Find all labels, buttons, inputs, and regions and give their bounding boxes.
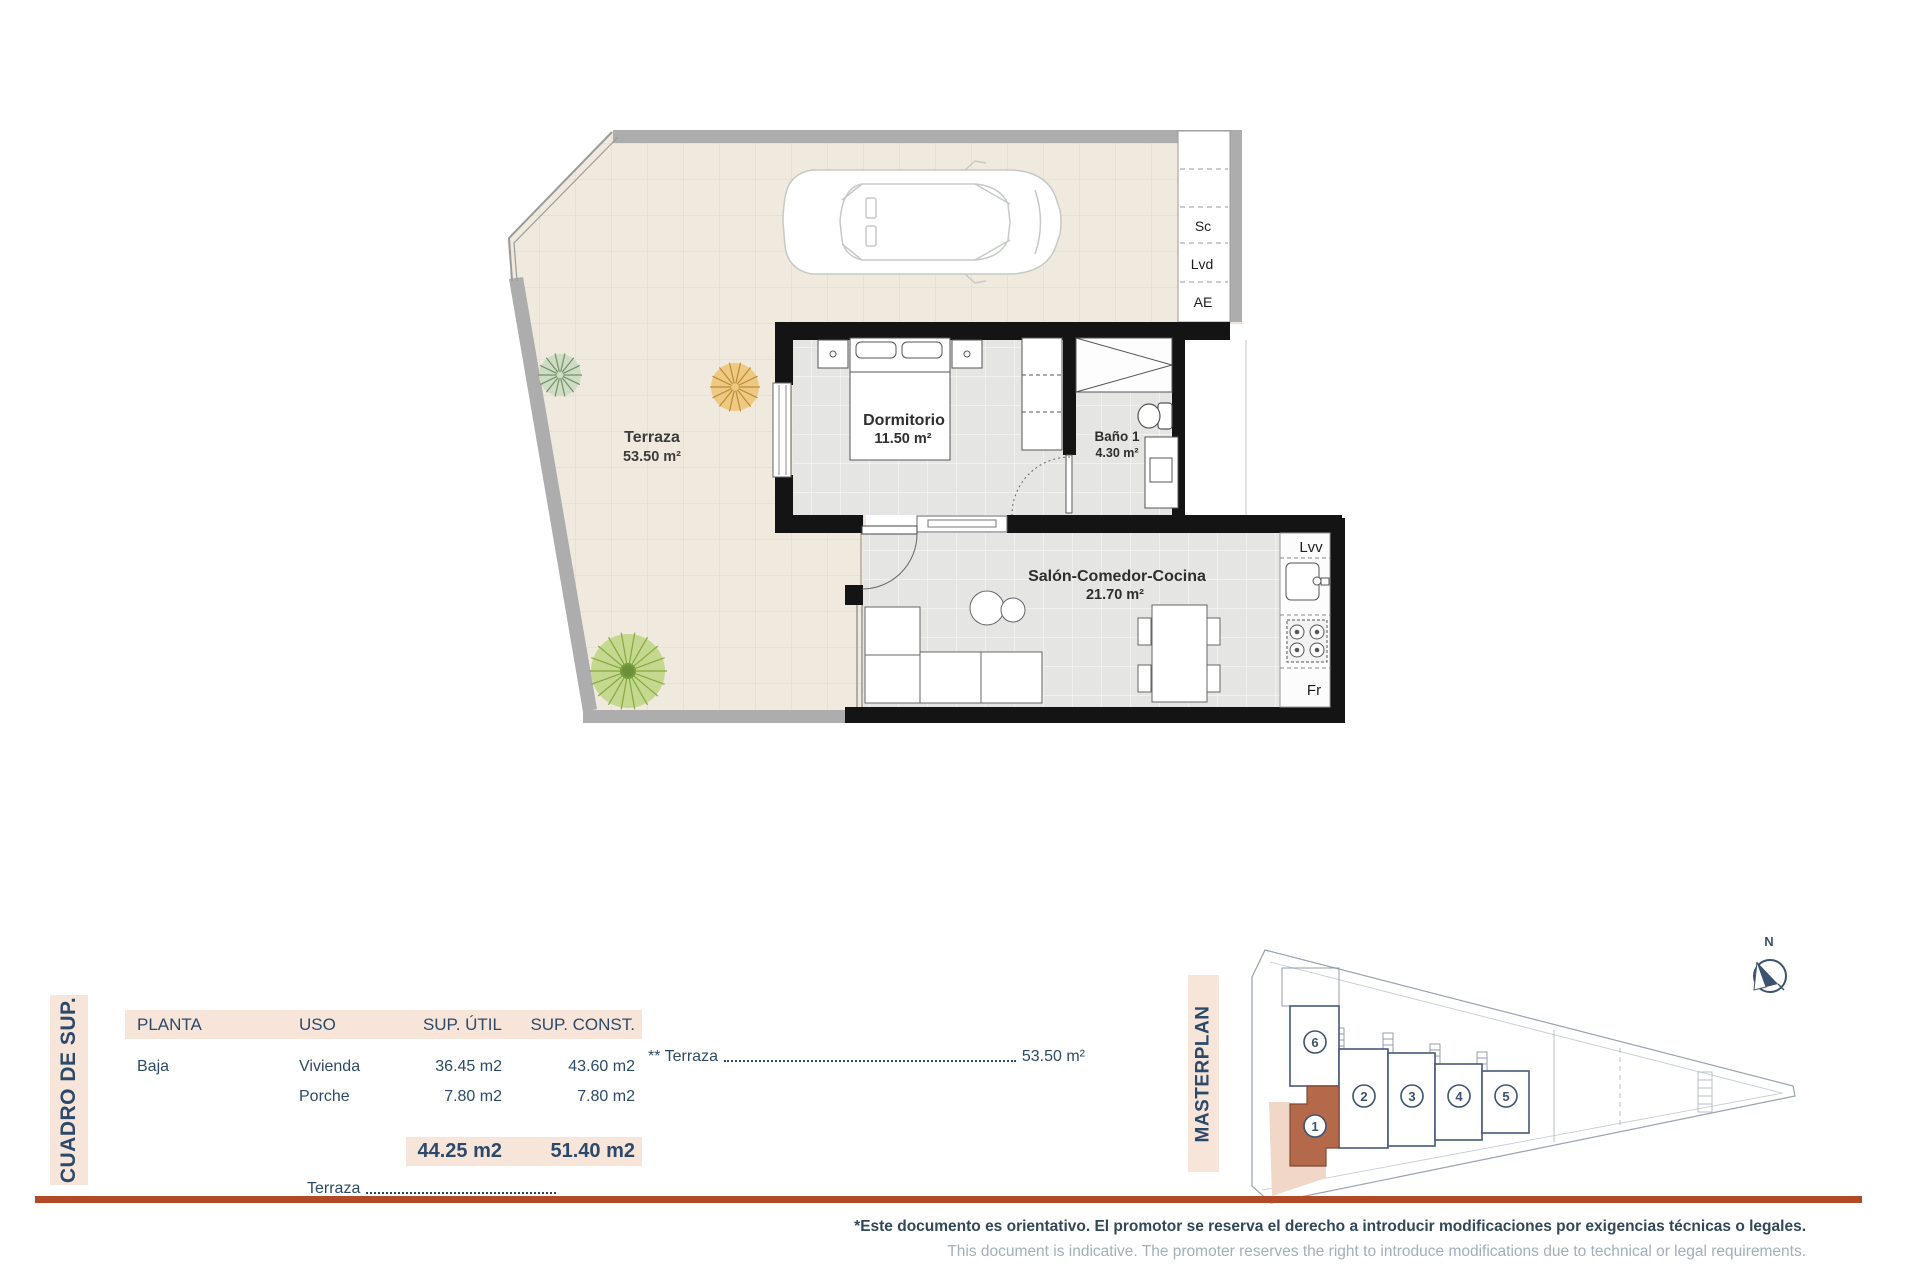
- surface-table-title: CUADRO DE SUP.: [57, 997, 81, 1183]
- north-label: N: [1764, 934, 1773, 949]
- disclaimer-en: This document is indicative. The promote…: [700, 1243, 1806, 1261]
- surface-table-title-strip: CUADRO DE SUP.: [50, 995, 88, 1185]
- terrace-note-leader: [724, 1060, 1016, 1062]
- toilet-icon: [1138, 403, 1172, 429]
- bathroom-area-label: 4.30 m²: [1095, 446, 1138, 460]
- north-arrow-icon: N: [1754, 934, 1786, 992]
- utility-column: Sc Lvd AE: [1178, 131, 1230, 322]
- wardrobe: [1022, 338, 1062, 450]
- terrace-wall-top: [613, 130, 1242, 143]
- header-sup-util: SUP. ÚTIL: [390, 1015, 502, 1035]
- header-planta: PLANTA: [137, 1015, 202, 1035]
- living-label: Salón-Comedor-Cocina: [1028, 568, 1206, 585]
- label-lvv: Lvv: [1299, 539, 1323, 556]
- header-sup-const: SUP. CONST.: [515, 1015, 635, 1035]
- unit-1-badge: 1: [1311, 1119, 1318, 1134]
- bathroom-sink: [1145, 437, 1178, 508]
- shower: [1076, 338, 1172, 392]
- unit-6-badge: 6: [1311, 1035, 1318, 1050]
- bedroom-label: Dormitorio: [863, 412, 945, 429]
- label-lvd: Lvd: [1191, 256, 1214, 272]
- label-sc: Sc: [1195, 218, 1211, 234]
- brochure-page: Sc Lvd AE: [0, 0, 1920, 1280]
- masterplan-title-strip: MASTERPLAN: [1188, 975, 1219, 1172]
- terrace-note-row: ** Terraza 53.50 m²: [648, 1048, 1085, 1066]
- terrace-note-label: ** Terraza: [648, 1048, 718, 1066]
- total-sup-const: 51.40 m2: [515, 1140, 635, 1163]
- unit-2-badge: 2: [1360, 1089, 1367, 1104]
- terrace-note-value: 53.50 m²: [1022, 1048, 1085, 1066]
- header-uso: USO: [299, 1015, 336, 1035]
- terrace-area-label: 53.50 m²: [623, 449, 681, 465]
- cell-util-vivienda: 36.45 m2: [390, 1058, 502, 1076]
- label-fr: Fr: [1307, 682, 1321, 699]
- terrace-wall-bottom: [583, 710, 845, 723]
- living-area-label: 21.70 m²: [1086, 587, 1144, 603]
- floorplan-drawing: Sc Lvd AE: [0, 0, 1920, 1280]
- masterplan-map: 6 1 2 3 4 5 N: [1252, 934, 1795, 1203]
- bathroom-label: Baño 1: [1094, 429, 1140, 444]
- terrace-wall-right: [1230, 130, 1242, 322]
- car-icon: [783, 161, 1061, 283]
- cell-uso-porche: Porche: [299, 1088, 350, 1106]
- masterplan-title: MASTERPLAN: [1193, 1005, 1215, 1142]
- bedroom-area-label: 11.50 m²: [874, 431, 931, 447]
- cell-planta-baja: Baja: [137, 1058, 169, 1076]
- cell-uso-vivienda: Vivienda: [299, 1058, 360, 1076]
- terrace-label: Terraza: [624, 429, 680, 446]
- unit-4-badge: 4: [1455, 1089, 1463, 1104]
- cell-util-porche: 7.80 m2: [390, 1088, 502, 1106]
- disclaimer-es: *Este documento es orientativo. El promo…: [700, 1218, 1806, 1236]
- kitchen-strip: Lvv Fr: [1280, 533, 1330, 707]
- unit-5-badge: 5: [1502, 1089, 1509, 1104]
- label-ae: AE: [1194, 294, 1213, 310]
- terrace-partial-leader: [366, 1192, 556, 1194]
- total-sup-util: 44.25 m2: [385, 1140, 502, 1163]
- unit-3-badge: 3: [1408, 1089, 1415, 1104]
- cell-const-porche: 7.80 m2: [515, 1088, 635, 1106]
- cooktop-icon: [1287, 620, 1327, 662]
- cell-const-vivienda: 43.60 m2: [515, 1058, 635, 1076]
- divider-rule: [35, 1196, 1862, 1203]
